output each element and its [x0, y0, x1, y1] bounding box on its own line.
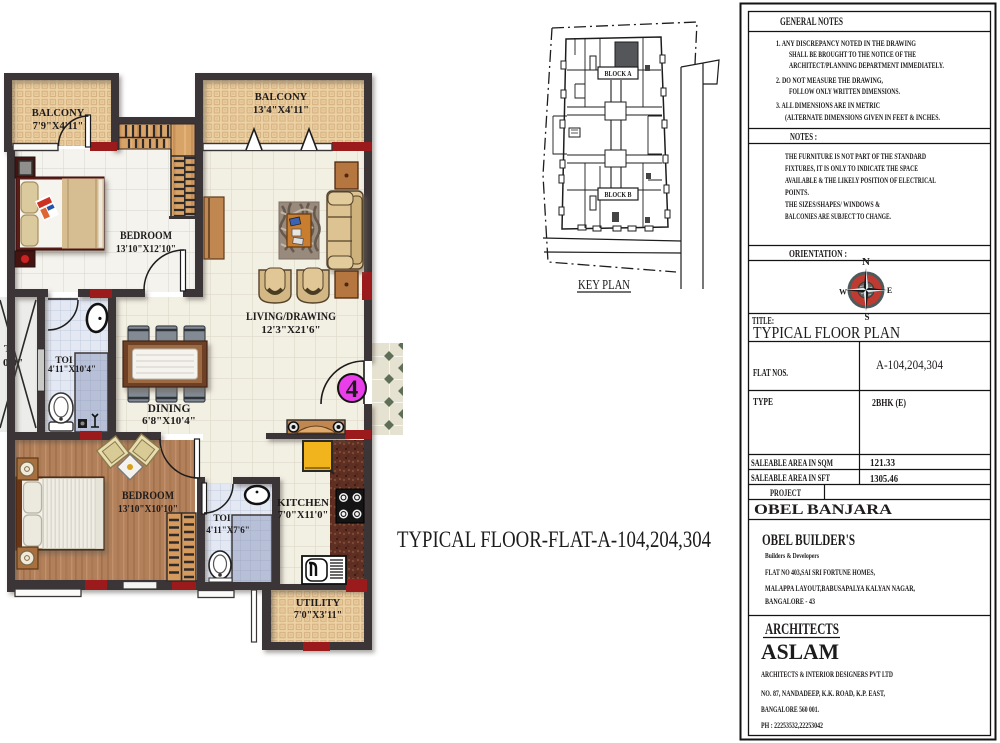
svg-text:KITCHEN: KITCHEN — [277, 497, 329, 509]
svg-text:TYPE: TYPE — [753, 397, 773, 408]
svg-text:DINING: DINING — [148, 403, 191, 415]
svg-text:KEY PLAN: KEY PLAN — [578, 277, 630, 292]
svg-text:12'3"X21'6": 12'3"X21'6" — [261, 324, 320, 336]
svg-text:PH : 22253532,22253042: PH : 22253532,22253042 — [761, 720, 823, 730]
svg-text:BALCONIES ARE SUBJECT TO CHANG: BALCONIES ARE SUBJECT TO CHANGE. — [785, 211, 891, 221]
svg-text:2. DO NOT MEASURE THE DRAWING: 2. DO NOT MEASURE THE DRAWING, — [776, 75, 883, 85]
svg-text:6'8"X10'4": 6'8"X10'4" — [142, 415, 196, 427]
svg-text:UTILITY: UTILITY — [296, 598, 341, 609]
svg-text:BLOCK B: BLOCK B — [605, 191, 632, 199]
svg-text:SALEABLE AREA IN SQM: SALEABLE AREA IN SQM — [751, 459, 833, 469]
svg-text:4: 4 — [346, 376, 359, 403]
svg-text:GENERAL NOTES: GENERAL NOTES — [780, 16, 843, 28]
svg-text:NO. 87, NANDADEEP, K.K. ROAD: NO. 87, NANDADEEP, K.K. ROAD, K.P. EAST, — [761, 688, 885, 698]
svg-text:7'0"X11'0": 7'0"X11'0" — [278, 510, 329, 521]
svg-text:OBEL BUILDER'S: OBEL BUILDER'S — [762, 532, 855, 549]
svg-text:1. ANY DISCREPANCY NOTED IN: 1. ANY DISCREPANCY NOTED IN THE DRAWING — [776, 38, 916, 48]
svg-text:13'10"X10'10": 13'10"X10'10" — [118, 503, 178, 515]
svg-text:FLAT NOS.: FLAT NOS. — [753, 368, 788, 379]
svg-text:FLAT NO 403,SAI SRI FORTUNE HO: FLAT NO 403,SAI SRI FORTUNE HOMES, — [765, 567, 875, 577]
svg-text:W: W — [839, 288, 847, 297]
svg-text:Builders & Developers: Builders & Developers — [765, 551, 819, 560]
svg-text:ORIENTATION :: ORIENTATION : — [789, 249, 847, 260]
svg-text:13'4"X4'11": 13'4"X4'11" — [253, 105, 309, 116]
svg-text:4'11"X7'6": 4'11"X7'6" — [206, 525, 250, 535]
svg-text:BLOCK A: BLOCK A — [605, 70, 632, 78]
svg-text:SHALL BE BROUGHT TO THE NOTICE: SHALL BE BROUGHT TO THE NOTICE OF THE — [789, 49, 916, 59]
svg-text:BANGALORE 560 001.: BANGALORE 560 001. — [761, 704, 819, 714]
svg-text:121.33: 121.33 — [870, 457, 895, 469]
svg-text:BALCONY: BALCONY — [32, 108, 85, 119]
svg-text:ARCHITECT/PLANNING DEPARTMENT: ARCHITECT/PLANNING DEPARTMENT IMMEDIATEL… — [789, 60, 944, 70]
svg-text:BEDROOM: BEDROOM — [120, 230, 172, 242]
svg-text:S: S — [864, 312, 869, 322]
svg-text:A-104,204,304: A-104,204,304 — [876, 358, 944, 372]
svg-text:THE FURNITURE IS NOT PART OF T: THE FURNITURE IS NOT PART OF THE STANDAR… — [785, 151, 926, 161]
svg-text:2BHK (E): 2BHK (E) — [872, 397, 906, 409]
svg-text:LIVING/DRAWING: LIVING/DRAWING — [246, 311, 336, 323]
svg-text:N: N — [862, 256, 870, 268]
svg-text:POINTS.: POINTS. — [785, 187, 809, 197]
svg-text:7'9"X4'11": 7'9"X4'11" — [33, 121, 84, 132]
svg-text:ARCHITECTS & INTERIOR DESIGNE: ARCHITECTS & INTERIOR DESIGNERS PVT LTD — [761, 669, 893, 679]
svg-text:ASLAM: ASLAM — [761, 639, 839, 664]
svg-text:7'0"X3'11": 7'0"X3'11" — [294, 610, 342, 621]
svg-text:TYPICAL FLOOR-FLAT-A-104,204,3: TYPICAL FLOOR-FLAT-A-104,204,304 — [397, 527, 711, 552]
svg-text:3. ALL DIMENSIONS ARE IN MET: 3. ALL DIMENSIONS ARE IN METRIC — [776, 100, 880, 110]
svg-text:PROJECT: PROJECT — [770, 489, 801, 499]
svg-text:1305.46: 1305.46 — [870, 473, 898, 485]
svg-text:THE SIZES/SHAPES/ WINDOWS &: THE SIZES/SHAPES/ WINDOWS & — [785, 199, 880, 209]
svg-text:TOI: TOI — [213, 514, 231, 524]
svg-text:13'10"X12'10": 13'10"X12'10" — [116, 243, 176, 255]
svg-text:4'11"X10'4": 4'11"X10'4" — [48, 364, 96, 374]
svg-text:ARCHITECTS: ARCHITECTS — [765, 621, 839, 638]
svg-text:FIXTURES, IT IS ONLY TO INDICA: FIXTURES, IT IS ONLY TO INDICATE THE SPA… — [785, 163, 918, 173]
svg-text:AVAILABLE & THE LIKELY POSITIO: AVAILABLE & THE LIKELY POSITION OF ELECT… — [785, 175, 936, 185]
svg-text:E: E — [887, 286, 892, 295]
svg-text:OBEL BANJARA: OBEL BANJARA — [754, 502, 892, 518]
svg-text:FOLLOW ONLY WRITTEN DIMENSIONS: FOLLOW ONLY WRITTEN DIMENSIONS. — [789, 86, 900, 96]
svg-text:TYPICAL FLOOR PLAN: TYPICAL FLOOR PLAN — [753, 323, 900, 342]
svg-text:BALCONY: BALCONY — [255, 92, 308, 103]
svg-text:BANGALORE - 43: BANGALORE - 43 — [765, 596, 815, 606]
svg-text:NOTES :: NOTES : — [790, 132, 817, 143]
svg-text:BEDROOM: BEDROOM — [122, 490, 174, 502]
svg-text:SALEABLE AREA IN SFT: SALEABLE AREA IN SFT — [751, 474, 830, 484]
svg-text:MALAPPA LAYOUT,BABUSAPALYA KAL: MALAPPA LAYOUT,BABUSAPALYA KALYAN NAGAR, — [765, 583, 915, 593]
svg-text:(ALTERNATE DIMENSIONS GIVEN IN: (ALTERNATE DIMENSIONS GIVEN IN FEET & IN… — [785, 112, 940, 122]
